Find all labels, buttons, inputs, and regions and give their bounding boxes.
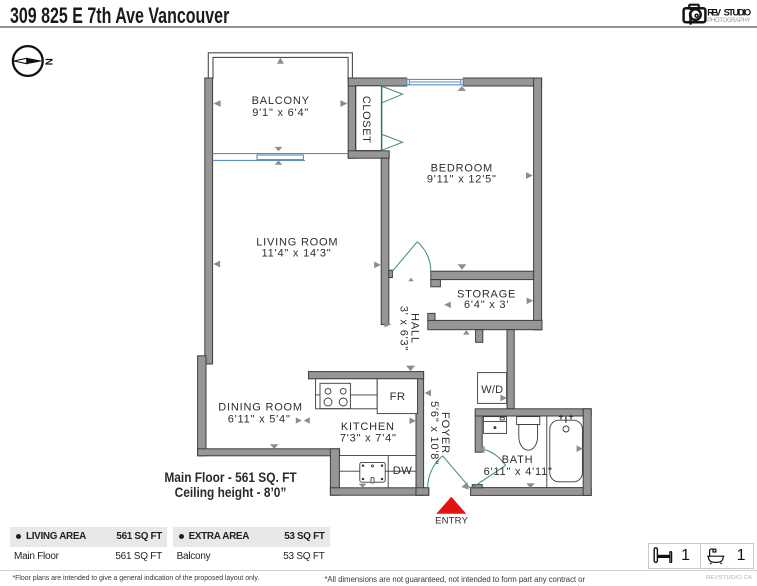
svg-text:5'6" x 10'8": 5'6" x 10'8" (428, 401, 440, 465)
svg-text:ENTRY: ENTRY (435, 516, 468, 527)
svg-text:6'11" x 5'4": 6'11" x 5'4" (228, 413, 291, 425)
svg-text:7'3" x 7'4": 7'3" x 7'4" (340, 433, 397, 445)
svg-text:DW: DW (393, 465, 412, 477)
svg-text:BALCONY: BALCONY (252, 95, 310, 107)
svg-text:CLOSET: CLOSET (360, 96, 372, 144)
svg-text:3' x 6'3": 3' x 6'3" (397, 306, 409, 351)
svg-text:6'4" x 3': 6'4" x 3' (464, 299, 509, 311)
svg-text:DINING ROOM: DINING ROOM (218, 402, 303, 414)
svg-text:N: N (43, 58, 54, 65)
svg-text:KITCHEN: KITCHEN (341, 421, 395, 433)
svg-text:9'11" x 12'5": 9'11" x 12'5" (427, 173, 497, 185)
svg-text:11'4" x 14'3": 11'4" x 14'3" (262, 248, 332, 260)
svg-text:6'11" x 4'11": 6'11" x 4'11" (484, 466, 553, 478)
svg-text:FR: FR (390, 391, 406, 403)
svg-text:9'1" x 6'4": 9'1" x 6'4" (252, 107, 309, 119)
svg-text:W/D: W/D (481, 384, 503, 396)
svg-text:BATH: BATH (502, 454, 534, 466)
